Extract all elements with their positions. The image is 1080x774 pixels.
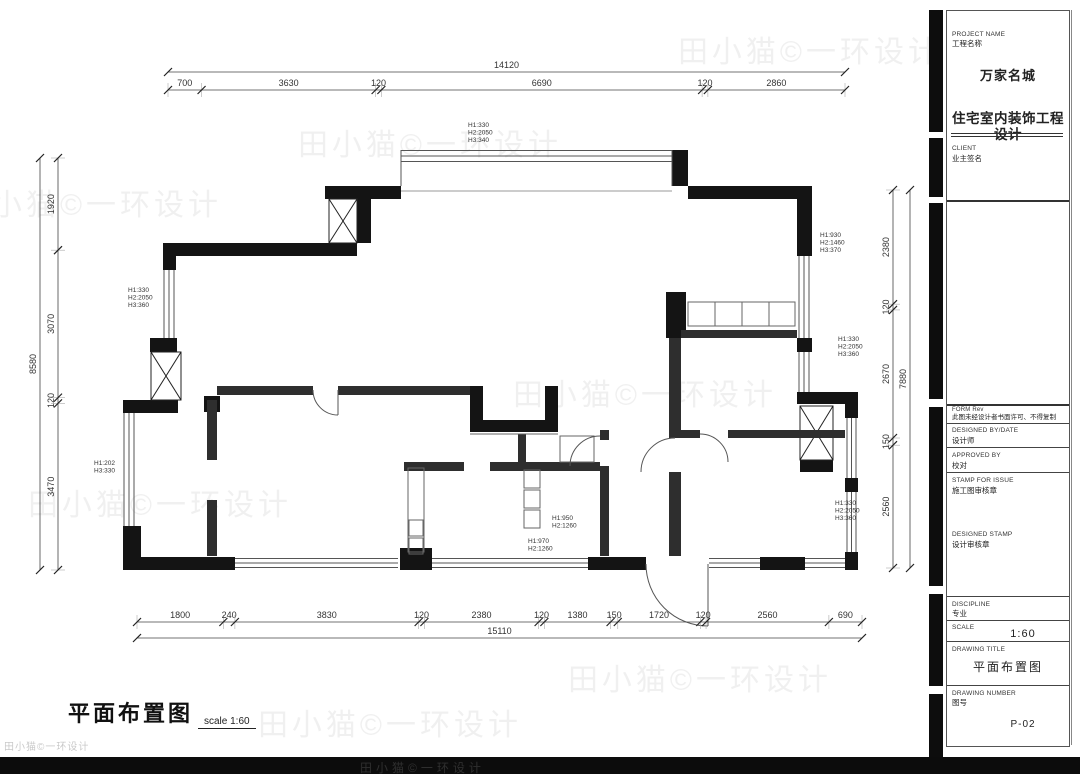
discipline-cn: 专业 bbox=[952, 610, 1065, 619]
drawing-number-cn: 图号 bbox=[952, 699, 1065, 708]
footer-scale: scale 1:60 bbox=[198, 716, 256, 729]
dimension-label: 2380 bbox=[881, 237, 891, 257]
dim-bottom: 1800240383012023801201380150172012025606… bbox=[133, 610, 866, 642]
height-label: H1:330H2:2050H3:360 bbox=[128, 287, 153, 309]
dimension-label: 120 bbox=[881, 300, 891, 315]
divider bbox=[947, 641, 1069, 642]
scale-value: 1:60 bbox=[977, 628, 1069, 641]
dimension-label: 150 bbox=[607, 610, 622, 620]
dimension-label: 1800 bbox=[170, 610, 190, 620]
project-type: 住宅室内装饰工程设计 bbox=[947, 111, 1069, 142]
dimension-label: 1380 bbox=[567, 610, 587, 620]
drawing-number-label: DRAWING NUMBER bbox=[952, 690, 1065, 697]
dimension-label: 2670 bbox=[881, 364, 891, 384]
svg-text:H3:370: H3:370 bbox=[820, 247, 841, 254]
height-label: H1:950H2:1260 bbox=[552, 515, 577, 530]
stamp-label: STAMP FOR ISSUE bbox=[952, 477, 1065, 484]
height-label: H1:970H2:1260 bbox=[528, 538, 553, 553]
dimension-label: 120 bbox=[371, 78, 386, 88]
watermark-text: 田小猫©一环设计 bbox=[678, 36, 942, 69]
svg-text:H1:930: H1:930 bbox=[820, 232, 841, 239]
divider bbox=[947, 447, 1069, 448]
bottom-strip: 田小猫©一环设计 bbox=[0, 757, 1080, 774]
sheet-edge-bar bbox=[929, 10, 943, 132]
sheet-edge-bar bbox=[929, 694, 943, 757]
drawing-sheet: 田小猫©一环设计田小猫©一环设计田小猫©一环设计田小猫©一环设计田小猫©一环设计… bbox=[0, 0, 1080, 774]
form-label: FORM Rev bbox=[952, 407, 1065, 414]
svg-text:H3:330: H3:330 bbox=[94, 468, 115, 475]
dimension-label: 2560 bbox=[881, 497, 891, 517]
drawing-title: 平面布置图 bbox=[947, 661, 1069, 675]
watermark-text: 田小猫©一环设计 bbox=[568, 664, 832, 697]
dimension-label: 240 bbox=[222, 610, 237, 620]
dimension-label: 120 bbox=[46, 393, 56, 408]
project-name-label: PROJECT NAME bbox=[952, 31, 1065, 38]
dimension-label: 1720 bbox=[649, 610, 669, 620]
svg-text:H3:360: H3:360 bbox=[128, 302, 149, 309]
stamp-cn: 施工图审核章 bbox=[952, 487, 1065, 496]
sheet-edge-bar bbox=[929, 203, 943, 399]
dimension-overall-label: 15110 bbox=[487, 626, 511, 636]
designed-stamp-cn: 设计审核章 bbox=[952, 541, 1065, 550]
divider bbox=[947, 620, 1069, 621]
dimension-overall-label: 8580 bbox=[28, 354, 38, 374]
sheet-edge-bar bbox=[929, 407, 943, 586]
designed-by-label: DESIGNED BY/DATE bbox=[952, 427, 1065, 434]
dimension-label: 120 bbox=[534, 610, 549, 620]
svg-text:H2:1460: H2:1460 bbox=[820, 240, 845, 247]
dimension-label: 700 bbox=[177, 78, 192, 88]
svg-text:H3:340: H3:340 bbox=[468, 137, 489, 144]
svg-text:H2:1260: H2:1260 bbox=[528, 546, 553, 553]
watermark-text: 田小猫©一环设计 bbox=[28, 489, 292, 522]
dimension-label: 3830 bbox=[317, 610, 337, 620]
watermark-text: 田小猫©一环设计 bbox=[258, 709, 522, 742]
designed-by-cn: 设计师 bbox=[952, 437, 1065, 446]
watermark-text: 田小猫©一环设计 bbox=[0, 189, 222, 222]
client-label: CLIENT bbox=[952, 145, 1065, 152]
svg-text:H3:360: H3:360 bbox=[838, 351, 859, 358]
divider bbox=[951, 133, 1063, 137]
corner-watermark: 田小猫©一环设计 bbox=[4, 738, 89, 753]
dimension-label: 3630 bbox=[279, 78, 299, 88]
project-name-cn: 工程名称 bbox=[952, 40, 1065, 49]
dimension-label: 690 bbox=[838, 610, 853, 620]
dimension-label: 6690 bbox=[532, 78, 552, 88]
svg-text:H2:2050: H2:2050 bbox=[838, 344, 863, 351]
svg-text:H1:970: H1:970 bbox=[528, 538, 549, 545]
drawing-title-label: DRAWING TITLE bbox=[952, 646, 1065, 653]
sheet-edge-bar bbox=[929, 594, 943, 686]
sheet-edge-bar bbox=[929, 138, 943, 197]
svg-text:H2:2050: H2:2050 bbox=[128, 295, 153, 302]
svg-text:H1:330: H1:330 bbox=[835, 500, 856, 507]
svg-text:H1:330: H1:330 bbox=[128, 287, 149, 294]
divider bbox=[947, 404, 1069, 406]
height-label: H1:330H2:2050H3:360 bbox=[838, 336, 863, 358]
dimension-label: 2560 bbox=[757, 610, 777, 620]
dimension-label: 3470 bbox=[46, 477, 56, 497]
height-label: H1:930H2:1460H3:370 bbox=[820, 232, 845, 254]
svg-text:H3:360: H3:360 bbox=[835, 515, 856, 522]
approved-by-label: APPROVED BY bbox=[952, 452, 1065, 459]
divider bbox=[947, 685, 1069, 686]
dimension-overall-label: 7880 bbox=[898, 369, 908, 389]
drawing-number: P-02 bbox=[977, 719, 1069, 731]
partitions bbox=[207, 330, 845, 556]
footer: 平面布置图 scale 1:60 bbox=[68, 696, 193, 728]
strip-watermark: 田小猫©一环设计 bbox=[360, 759, 485, 774]
divider bbox=[947, 472, 1069, 473]
watermark-text: 田小猫©一环设计 bbox=[298, 129, 562, 162]
svg-text:H2:1260: H2:1260 bbox=[552, 523, 577, 530]
divider bbox=[947, 596, 1069, 597]
dimension-label: 2860 bbox=[766, 78, 786, 88]
dimension-overall-label: 14120 bbox=[494, 60, 519, 70]
svg-text:H1:330: H1:330 bbox=[838, 336, 859, 343]
title-block: PROJECT NAME 工程名称 万家名城 住宅室内装饰工程设计 CLIENT… bbox=[946, 10, 1070, 747]
dimension-label: 120 bbox=[697, 78, 712, 88]
dimension-label: 120 bbox=[696, 610, 711, 620]
sheet-border bbox=[1071, 10, 1072, 745]
svg-text:H1:202: H1:202 bbox=[94, 460, 115, 467]
svg-text:H1:950: H1:950 bbox=[552, 515, 573, 522]
footer-drawing-title: 平面布置图 bbox=[68, 701, 193, 726]
floor-plan: 田小猫©一环设计田小猫©一环设计田小猫©一环设计田小猫©一环设计田小猫©一环设计… bbox=[0, 0, 1080, 774]
dimension-label: 120 bbox=[414, 610, 429, 620]
height-label: H1:202H3:330 bbox=[94, 460, 115, 475]
svg-text:H1:330: H1:330 bbox=[468, 122, 489, 129]
divider bbox=[947, 423, 1069, 424]
divider bbox=[947, 200, 1069, 202]
project-name: 万家名城 bbox=[947, 69, 1069, 84]
dimension-label: 150 bbox=[881, 434, 891, 449]
form-note: 此图未经设计者书面许可、不得复制 bbox=[952, 414, 1065, 421]
designed-stamp-label: DESIGNED STAMP bbox=[952, 531, 1065, 538]
svg-text:H2:2050: H2:2050 bbox=[468, 130, 493, 137]
dimension-label: 1920 bbox=[46, 194, 56, 214]
approved-by-cn: 校对 bbox=[952, 462, 1065, 471]
dim-right: 2380120267015025607880 bbox=[881, 186, 914, 572]
discipline-label: DISCIPLINE bbox=[952, 601, 1065, 608]
client-cn: 业主签名 bbox=[952, 155, 1065, 164]
dimension-label: 3070 bbox=[46, 314, 56, 334]
dimension-label: 2380 bbox=[471, 610, 491, 620]
svg-text:H2:2050: H2:2050 bbox=[835, 508, 860, 515]
